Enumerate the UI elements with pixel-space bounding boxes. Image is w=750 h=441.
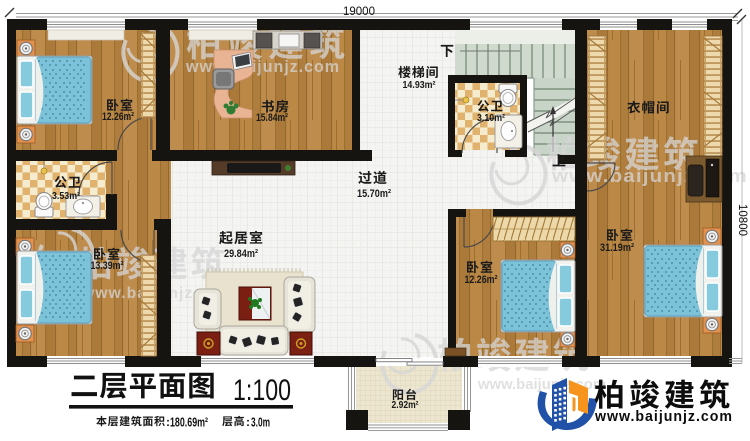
svg-text:12.26m²: 12.26m² bbox=[102, 111, 134, 123]
svg-text:13.39m²: 13.39m² bbox=[91, 260, 124, 272]
svg-text:180.69m²: 180.69m² bbox=[170, 415, 208, 430]
svg-text:15.84m²: 15.84m² bbox=[256, 112, 288, 124]
svg-text:3.53m²: 3.53m² bbox=[52, 190, 80, 202]
svg-text:3.10m²: 3.10m² bbox=[477, 112, 505, 124]
svg-text:12.26m²: 12.26m² bbox=[465, 274, 498, 286]
svg-text:19000: 19000 bbox=[343, 6, 375, 18]
svg-text:www.baijunjz.com: www.baijunjz.com bbox=[594, 409, 733, 425]
svg-text:2.92m²: 2.92m² bbox=[392, 400, 420, 411]
svg-text:15.70m²: 15.70m² bbox=[357, 188, 391, 200]
svg-text:31.19m²: 31.19m² bbox=[600, 242, 634, 254]
svg-text:1:100: 1:100 bbox=[233, 374, 291, 407]
svg-text:www.baijunjz.com: www.baijunjz.com bbox=[185, 58, 340, 76]
svg-text:29.84m²: 29.84m² bbox=[224, 248, 258, 260]
svg-text:3.0m: 3.0m bbox=[251, 415, 270, 430]
svg-text:10800: 10800 bbox=[736, 204, 748, 236]
svg-text::: : bbox=[246, 415, 250, 429]
svg-text:14.93m²: 14.93m² bbox=[403, 79, 436, 91]
